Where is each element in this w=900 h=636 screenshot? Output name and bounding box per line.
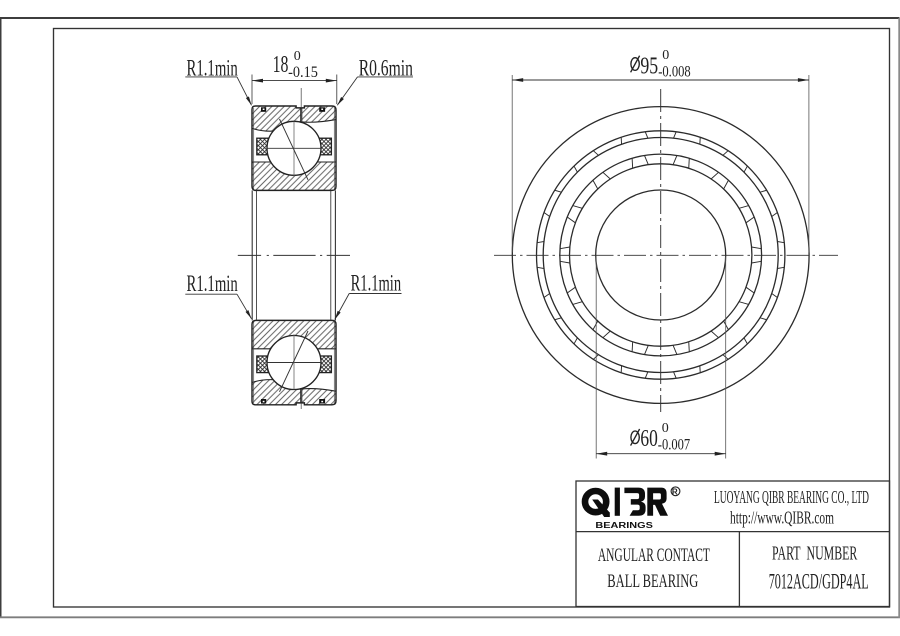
svg-text:7012ACD/GDP4AL: 7012ACD/GDP4AL bbox=[769, 569, 869, 594]
svg-text:0: 0 bbox=[662, 48, 669, 63]
svg-text:18: 18 bbox=[273, 52, 289, 78]
svg-text:95: 95 bbox=[640, 53, 658, 79]
svg-text:-0.008: -0.008 bbox=[658, 63, 691, 80]
svg-text:0: 0 bbox=[294, 49, 301, 64]
svg-text:http://www.QIBR.com: http://www.QIBR.com bbox=[730, 508, 834, 528]
svg-text:R1.1min: R1.1min bbox=[351, 270, 402, 295]
svg-text:0: 0 bbox=[662, 421, 669, 436]
svg-text:R: R bbox=[672, 488, 678, 497]
svg-text:-0.15: -0.15 bbox=[288, 64, 318, 81]
svg-text:R1.1min: R1.1min bbox=[187, 271, 239, 296]
svg-text:LUOYANG QIBR BEARING CO., LTD: LUOYANG QIBR BEARING CO., LTD bbox=[714, 487, 869, 507]
svg-text:BALL BEARING: BALL BEARING bbox=[607, 571, 698, 592]
svg-text:BEARINGS: BEARINGS bbox=[595, 520, 653, 530]
svg-text:ANGULAR CONTACT: ANGULAR CONTACT bbox=[598, 545, 710, 566]
svg-text:PART NUMBER: PART NUMBER bbox=[772, 542, 858, 564]
svg-text:-0.007: -0.007 bbox=[658, 437, 691, 454]
svg-text:60: 60 bbox=[640, 426, 657, 452]
